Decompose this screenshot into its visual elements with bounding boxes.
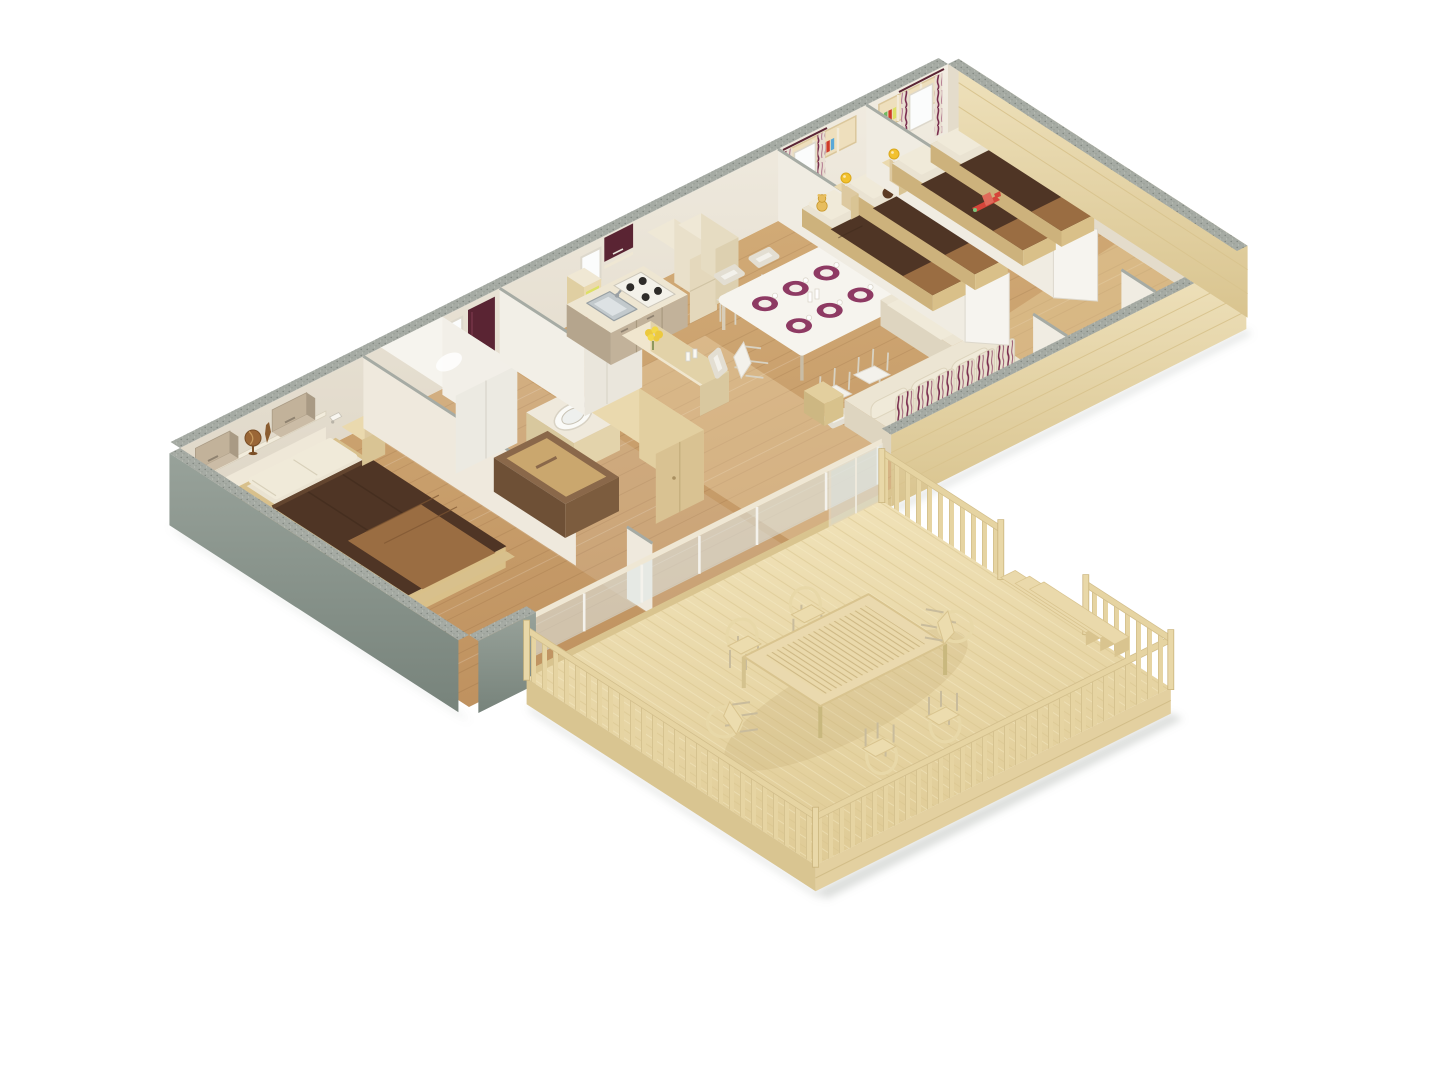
screenshot-root [0, 0, 1440, 1080]
curtain-right [935, 73, 943, 137]
teddy-yellow [817, 194, 827, 211]
floorplan-render [0, 0, 1440, 1080]
